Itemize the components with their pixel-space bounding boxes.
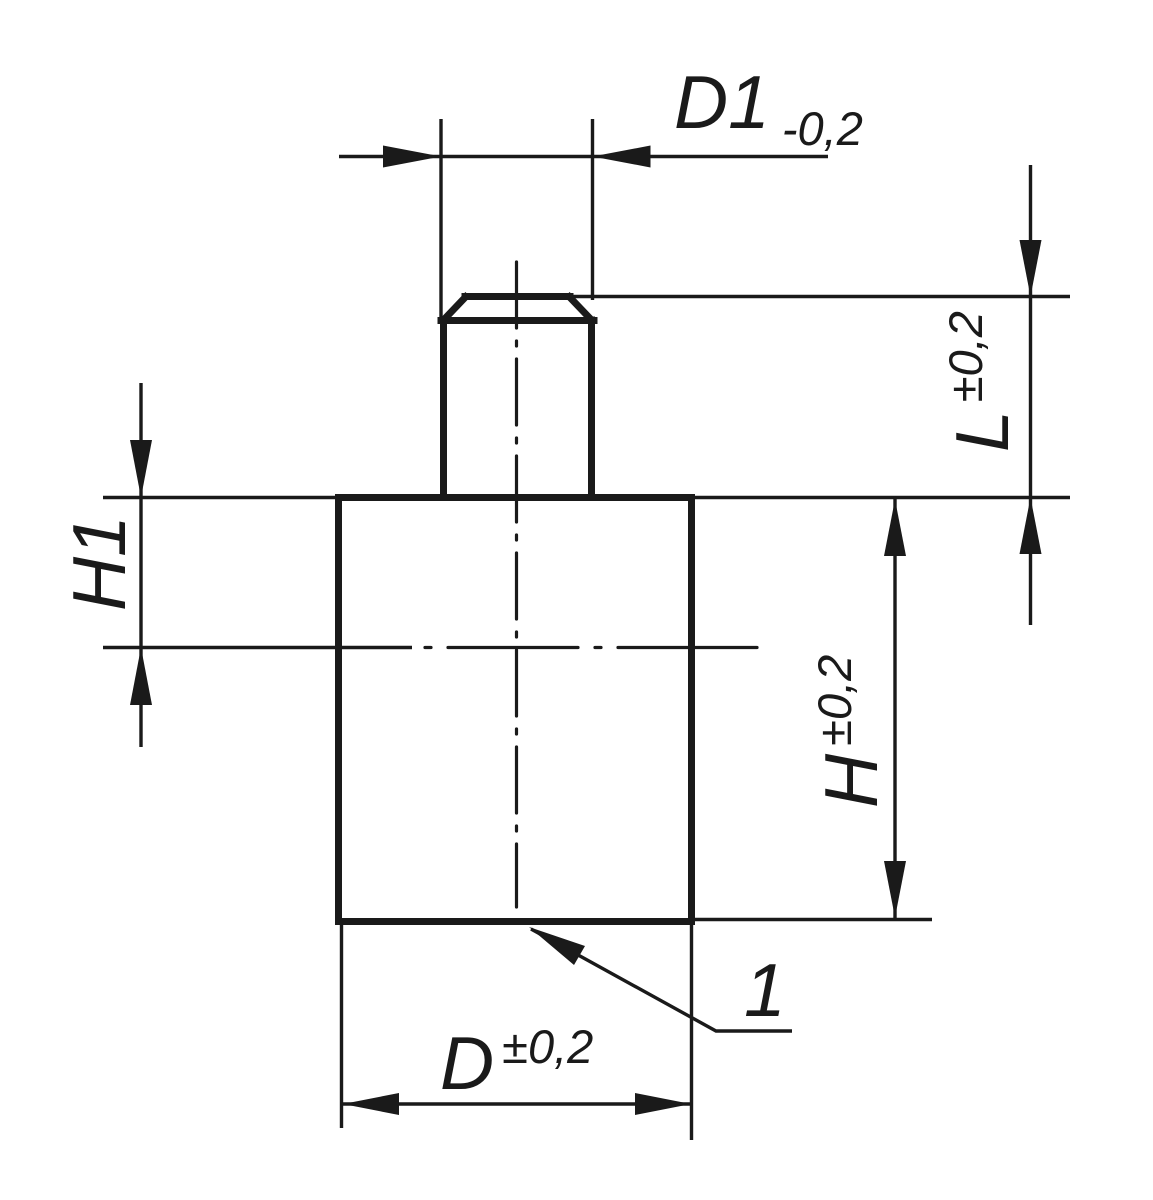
dim-l-tolerance: ±0,2 — [939, 311, 992, 402]
stud-chamfer-left — [444, 297, 466, 320]
h1-arrow-bottom — [130, 648, 152, 706]
arrowheads — [130, 146, 1042, 1116]
h-arrow-top — [884, 500, 906, 557]
dim-l-name: L — [940, 410, 1024, 452]
dim-h-name: H — [809, 753, 893, 808]
technical-drawing-canvas: D1-0,2 L±0,2 H1 H±0,2 D±0,2 1 — [0, 0, 1153, 1200]
callout-leader-arrow — [529, 927, 585, 965]
dimension-labels: D1-0,2 L±0,2 H1 H±0,2 D±0,2 1 — [57, 60, 1024, 1105]
d-arrow-left — [343, 1093, 399, 1115]
h-arrow-bottom — [884, 861, 906, 918]
dim-d-tolerance: ±0,2 — [502, 1020, 593, 1073]
dim-d1-label: D1-0,2 — [674, 60, 863, 155]
dimension-lines — [103, 119, 1070, 1140]
dim-h-label: H±0,2 — [808, 655, 893, 808]
dim-d1-tolerance: -0,2 — [782, 102, 863, 155]
callout-1-text: 1 — [744, 948, 786, 1032]
l-arrow-top — [1020, 240, 1042, 297]
dim-d-label: D±0,2 — [440, 1020, 593, 1105]
dim-h1-name: H1 — [57, 515, 141, 611]
stud-chamfer-right — [570, 297, 592, 320]
dim-h1-label: H1 — [57, 515, 141, 611]
dimension-drawing: D1-0,2 L±0,2 H1 H±0,2 D±0,2 1 — [0, 0, 1153, 1200]
d-arrow-right — [635, 1093, 691, 1115]
dim-d-name: D — [440, 1021, 494, 1105]
dim-l-label: L±0,2 — [939, 311, 1024, 452]
d1-arrow-right — [593, 146, 651, 168]
dim-d1-name: D1 — [674, 60, 770, 144]
d1-arrow-left — [383, 146, 441, 168]
h1-arrow-top — [130, 440, 152, 498]
callout-1-label: 1 — [744, 948, 786, 1032]
l-arrow-bottom — [1020, 498, 1042, 555]
dim-h-tolerance: ±0,2 — [808, 655, 861, 746]
